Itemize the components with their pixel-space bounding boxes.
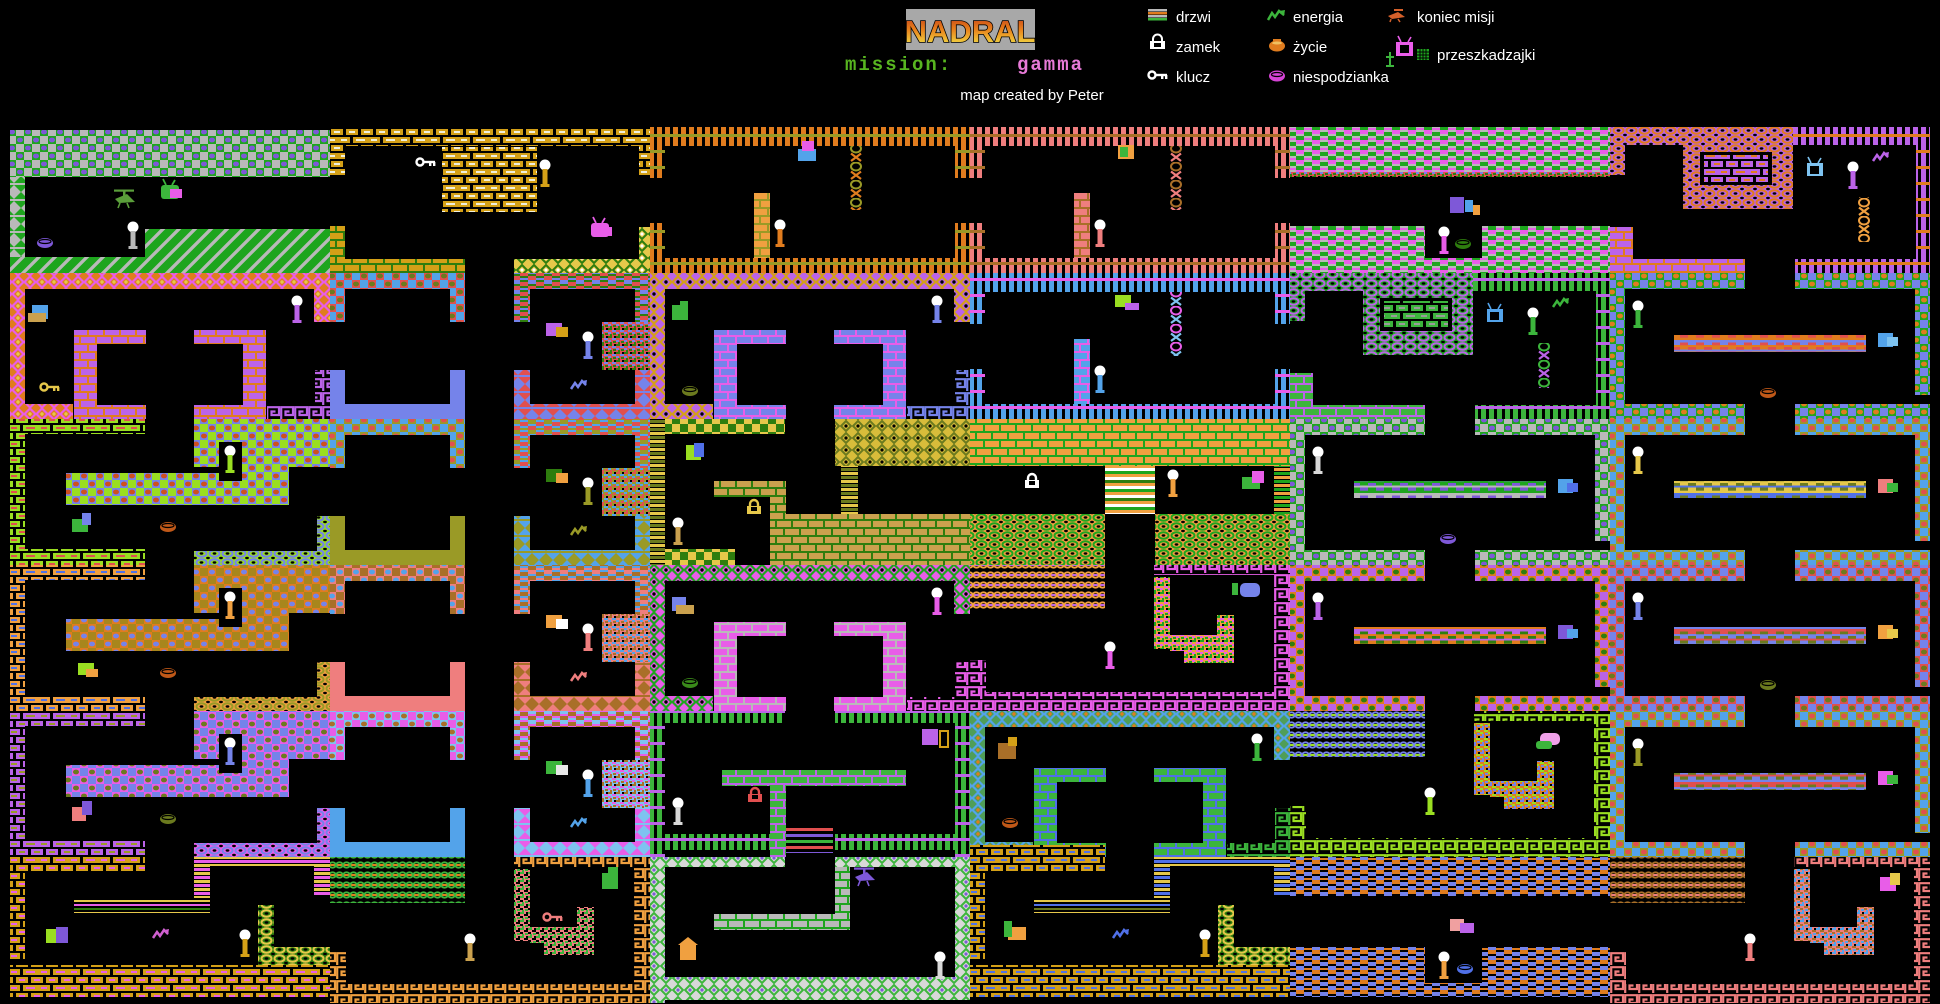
svg-text:drzwi: drzwi [1176,9,1211,26]
svg-text:przeszkadzajki: przeszkadzajki [1437,47,1535,64]
svg-text:NADRAL: NADRAL [905,14,1036,49]
svg-text:mission:: mission: [845,54,952,76]
svg-text:klucz: klucz [1176,69,1210,86]
svg-text:niespodzianka: niespodzianka [1293,69,1390,86]
svg-text:energia: energia [1293,9,1344,26]
svg-text:koniec misji: koniec misji [1417,9,1495,26]
svg-text:zamek: zamek [1176,39,1221,56]
svg-text:map created by Peter: map created by Peter [960,87,1103,104]
svg-text:życie: życie [1293,39,1327,56]
svg-text:gamma: gamma [1017,54,1084,76]
